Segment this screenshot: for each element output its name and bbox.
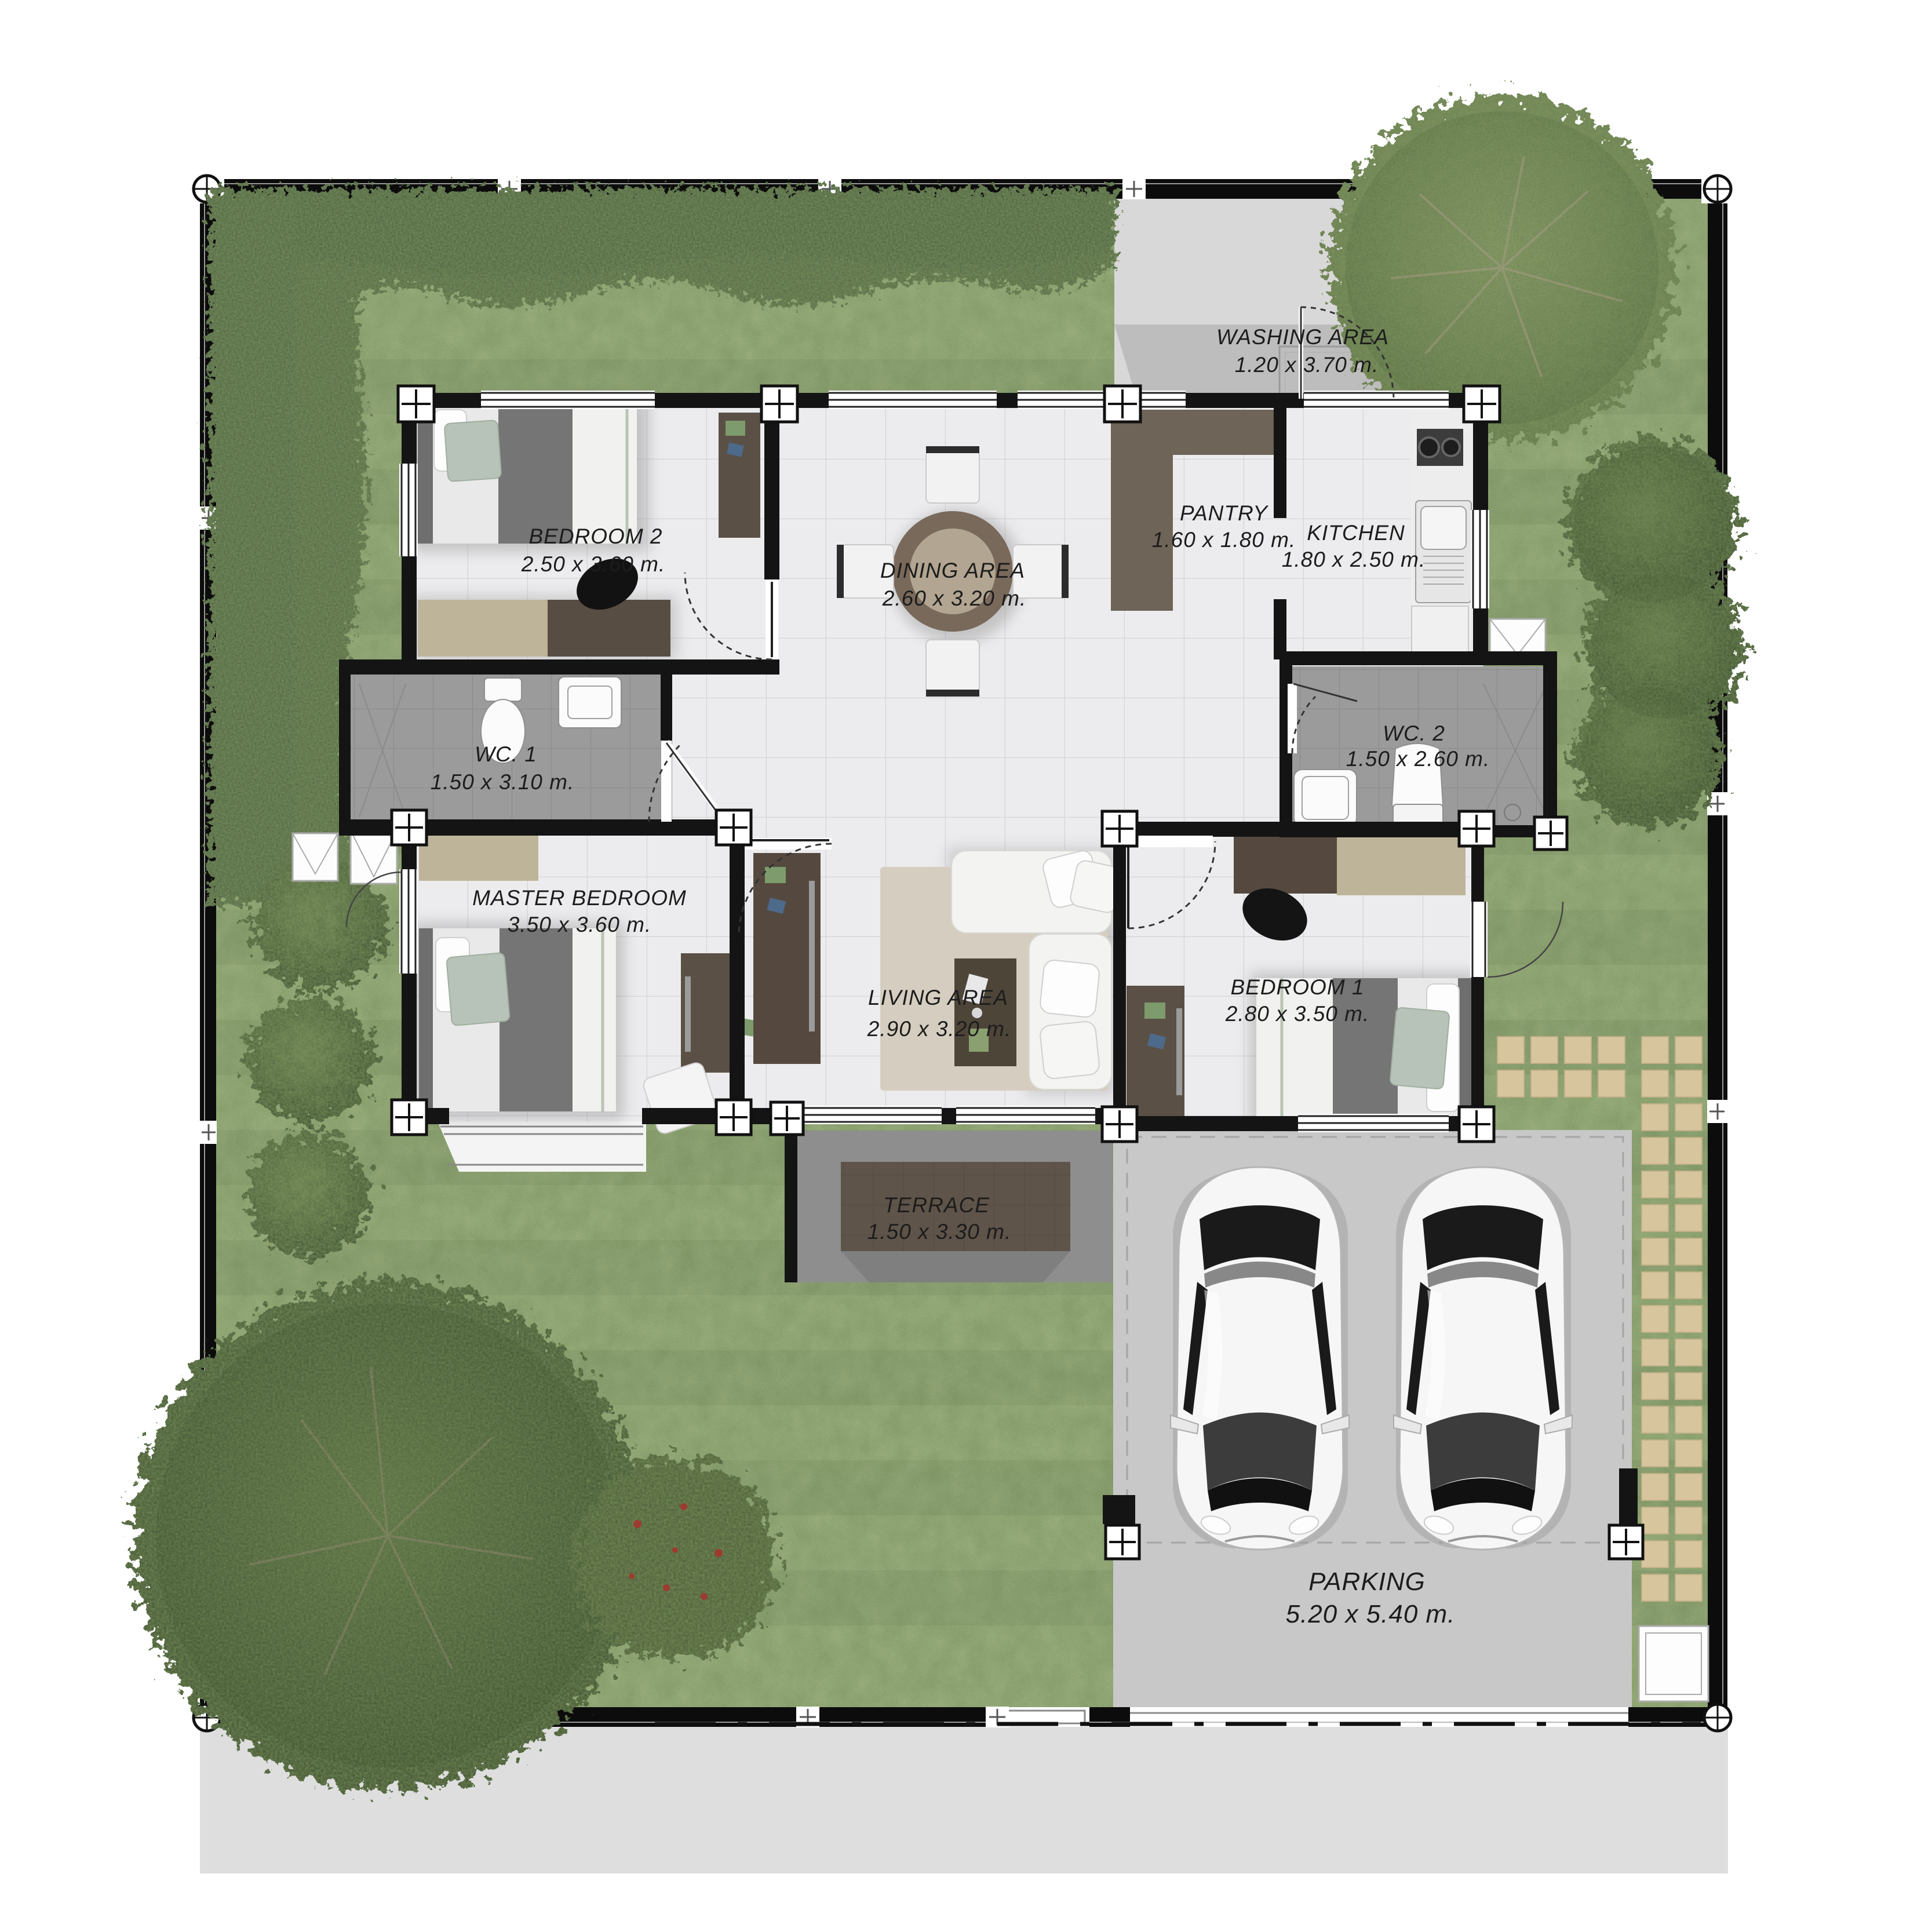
svg-text:PANTRY: PANTRY: [1180, 501, 1268, 525]
svg-text:WASHING AREA: WASHING AREA: [1216, 325, 1389, 349]
svg-text:WC. 2: WC. 2: [1383, 721, 1445, 745]
svg-text:PARKING: PARKING: [1308, 1568, 1426, 1596]
svg-text:BEDROOM 2: BEDROOM 2: [528, 524, 662, 548]
svg-text:1.80 x 2.50 m.: 1.80 x 2.50 m.: [1282, 548, 1426, 571]
svg-text:LIVING AREA: LIVING AREA: [868, 986, 1008, 1009]
svg-text:1.20 x 3.70 m.: 1.20 x 3.70 m.: [1235, 353, 1379, 377]
svg-text:KITCHEN: KITCHEN: [1307, 521, 1405, 545]
svg-text:TERRACE: TERRACE: [883, 1193, 990, 1217]
svg-text:BEDROOM 1: BEDROOM 1: [1230, 975, 1364, 999]
svg-text:3.50 x 3.60 m.: 3.50 x 3.60 m.: [508, 913, 651, 936]
svg-text:1.50 x 3.10 m.: 1.50 x 3.10 m.: [431, 770, 574, 794]
svg-text:5.20 x 5.40 m.: 5.20 x 5.40 m.: [1286, 1600, 1456, 1628]
svg-text:2.90 x 3.20 m.: 2.90 x 3.20 m.: [867, 1017, 1011, 1041]
svg-text:2.80 x 3.50 m.: 2.80 x 3.50 m.: [1225, 1002, 1369, 1026]
svg-text:2.60 x 3.20 m.: 2.60 x 3.20 m.: [882, 586, 1026, 610]
svg-text:1.60 x 1.80 m.: 1.60 x 1.80 m.: [1152, 528, 1296, 552]
svg-text:2.50 x 3.60 m.: 2.50 x 3.60 m.: [521, 552, 665, 576]
svg-text:WC. 1: WC. 1: [475, 742, 537, 766]
svg-text:1.50 x 2.60 m.: 1.50 x 2.60 m.: [1346, 747, 1490, 771]
svg-text:MASTER BEDROOM: MASTER BEDROOM: [472, 886, 687, 910]
svg-text:DINING AREA: DINING AREA: [880, 559, 1025, 582]
svg-text:1.50 x 3.30 m.: 1.50 x 3.30 m.: [867, 1220, 1011, 1244]
